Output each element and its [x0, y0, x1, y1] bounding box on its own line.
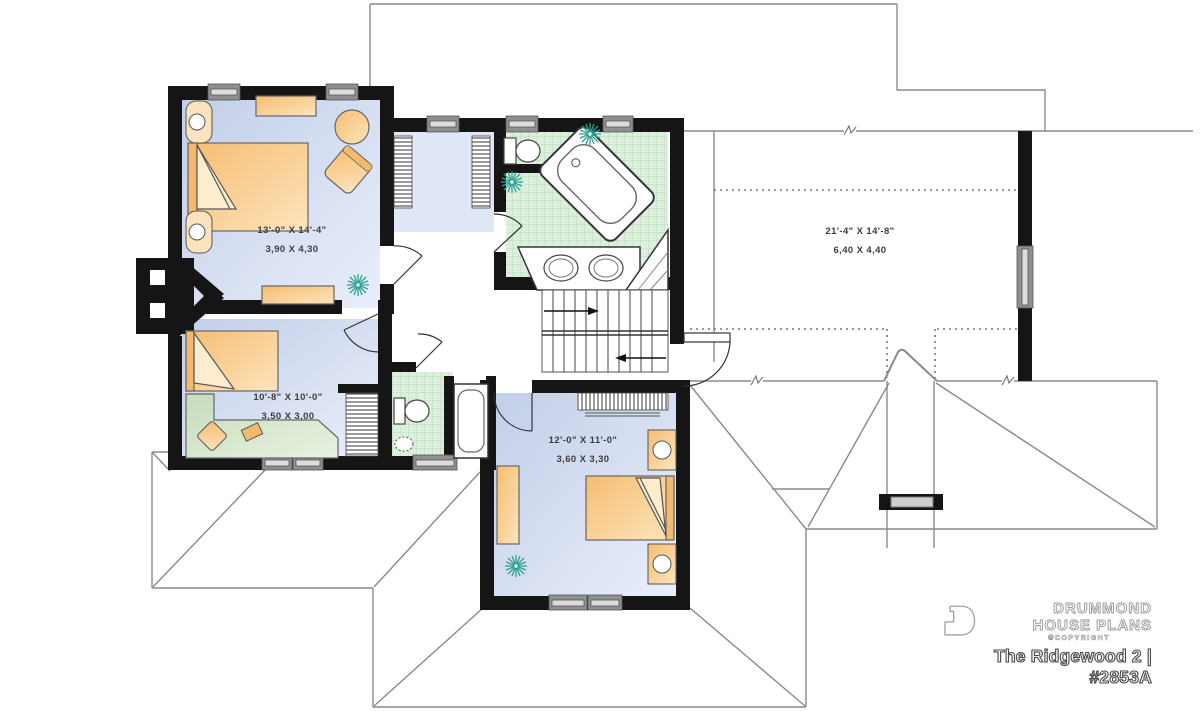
- bedroom2-imperial: 10'-8" X 10'-0": [213, 388, 363, 407]
- window: [506, 116, 538, 132]
- bedroom3-bed-icon: [586, 476, 674, 540]
- master-bedroom-metric: 3,90 X 4,30: [217, 240, 367, 259]
- round-chair-icon: [335, 110, 369, 144]
- dormer-window: [879, 494, 943, 510]
- plan-title: The Ridgewood 2 | #2853A: [938, 646, 1152, 688]
- double-vanity-icon: [518, 247, 640, 290]
- window: [549, 595, 587, 610]
- bedroom2-metric: 3,50 X 3,00: [213, 407, 363, 426]
- bonus-space-imperial: 21'-4" X 14'-8": [785, 222, 935, 241]
- pedestal-sink-icon: [395, 437, 413, 451]
- window: [208, 84, 240, 100]
- window: [1017, 246, 1033, 308]
- plant-icon: [501, 171, 523, 193]
- nightstand-icon: [186, 101, 212, 143]
- brand-name-line2: HOUSE PLANS: [1033, 617, 1152, 634]
- window: [427, 116, 459, 132]
- window: [588, 595, 622, 610]
- bedroom2-bed-icon: [186, 331, 278, 391]
- master-bedroom-label: 13'-0" X 14'-4" 3,90 X 4,30: [217, 221, 367, 259]
- plant-icon: [579, 123, 601, 145]
- bedroom3-label: 12'-0" X 11'-0" 3,60 X 3,30: [508, 431, 658, 469]
- dresser-icon: [256, 96, 316, 116]
- brand-name: DRUMMOND HOUSE PLANS: [1033, 600, 1152, 634]
- brand-name-line1: DRUMMOND: [1033, 600, 1152, 617]
- bonus-space-label: 21'-4" X 14'-8" 6,40 X 4,40: [785, 222, 935, 260]
- tall-dresser-icon: [497, 466, 519, 544]
- toilet-icon: [394, 398, 429, 424]
- bedroom3-metric: 3,60 X 3,30: [508, 450, 658, 469]
- window: [326, 84, 358, 100]
- toilet-icon: [504, 138, 540, 164]
- bathtub-icon: [454, 384, 488, 458]
- bedroom3-imperial: 12'-0" X 11'-0": [508, 431, 658, 450]
- dresser-icon: [262, 286, 334, 304]
- window: [413, 455, 457, 470]
- bedroom2-label: 10'-8" X 10'-0" 3,50 X 3,00: [213, 388, 363, 426]
- plant-icon: [347, 274, 369, 296]
- door-monogram-icon: [938, 600, 978, 642]
- bonus-space-metric: 6,40 X 4,40: [785, 241, 935, 260]
- plant-icon: [505, 555, 527, 577]
- attic-clearance-dotted-lines: [690, 190, 1018, 378]
- nightstand-icon: [648, 544, 676, 584]
- staircase: [542, 290, 668, 372]
- master-bedroom-imperial: 13'-0" X 14'-4": [217, 221, 367, 240]
- window: [603, 116, 633, 132]
- floor-plan-canvas: 13'-0" X 14'-4" 3,90 X 4,30 10'-8" X 10'…: [0, 0, 1200, 711]
- nightstand-icon: [186, 211, 212, 253]
- brand-block: DRUMMOND HOUSE PLANS ©COPYRIGHT The Ridg…: [938, 600, 1152, 688]
